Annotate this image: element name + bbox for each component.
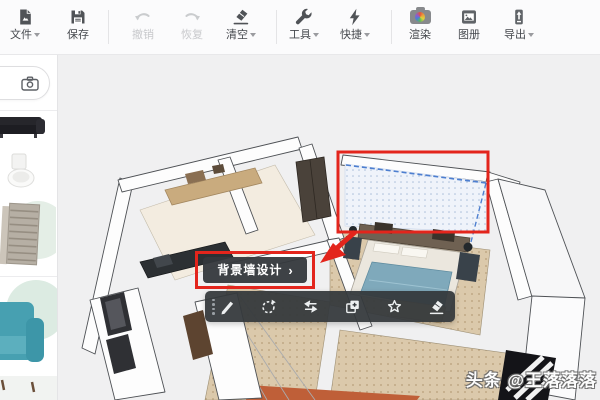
favorite-star-icon[interactable]	[386, 298, 403, 315]
annotation-outline-box: 背景墙设计 ›	[195, 251, 315, 289]
clear-button[interactable]: 清空	[219, 4, 263, 52]
album-button[interactable]: 图册	[447, 4, 491, 52]
rainbow-lens-icon	[415, 12, 425, 22]
background-wall-design-button[interactable]: 背景墙设计 ›	[203, 257, 307, 283]
camera-icon	[21, 76, 39, 91]
tools-button[interactable]: 工具	[282, 4, 326, 52]
dark-sofa-thumbnail	[0, 112, 50, 146]
sidebar-divider	[0, 276, 57, 277]
redo-icon	[182, 7, 202, 27]
dropdown-caret-icon	[364, 33, 370, 37]
undo-label: 撤销	[132, 29, 154, 41]
rotate-icon[interactable]	[260, 298, 277, 315]
catalog-item-teal-sofa[interactable]	[0, 280, 57, 400]
app-window: 文件 保存 撤销 恢复	[0, 0, 600, 400]
export-label: 导出	[504, 29, 526, 41]
sidebar-divider	[0, 110, 57, 111]
clear-label: 清空	[226, 29, 248, 41]
lamp-right	[464, 243, 473, 252]
export-icon	[509, 7, 529, 27]
render-button[interactable]: 渲染	[398, 4, 442, 52]
drag-handle-icon[interactable]	[212, 299, 215, 315]
background-wall-design-label: 背景墙设计	[217, 264, 282, 276]
tools-label: 工具	[289, 29, 311, 41]
redo-button[interactable]: 恢复	[170, 4, 214, 52]
dropdown-caret-icon	[250, 33, 256, 37]
object-context-toolbar	[205, 291, 455, 322]
undo-button[interactable]: 撤销	[121, 4, 165, 52]
cabinet-thumbnail	[0, 198, 56, 274]
save-icon	[68, 7, 88, 27]
toilet-thumbnail	[0, 146, 50, 198]
file-icon	[15, 7, 35, 27]
teal-sofa-thumbnail	[0, 280, 57, 400]
file-label: 文件	[10, 29, 32, 41]
copy-add-icon[interactable]	[344, 298, 361, 315]
toolbar-separator	[108, 10, 109, 44]
nightstand-right	[456, 252, 480, 282]
toolbar-separator	[391, 10, 392, 44]
file-button[interactable]: 文件	[3, 4, 47, 52]
edit-pencil-icon[interactable]	[219, 298, 236, 315]
render-camera-icon	[410, 10, 431, 24]
save-button[interactable]: 保存	[56, 4, 100, 52]
top-toolbar: 文件 保存 撤销 恢复	[0, 0, 600, 55]
lightning-icon	[345, 7, 365, 27]
dropdown-caret-icon	[313, 33, 319, 37]
erase-delete-icon[interactable]	[428, 298, 445, 315]
mirror-flip-icon[interactable]	[302, 298, 319, 315]
watermark: 头条 @王落落落	[466, 366, 597, 391]
quick-button[interactable]: 快捷	[333, 4, 377, 52]
render-label: 渲染	[409, 29, 431, 41]
undo-icon	[133, 7, 153, 27]
toolbar-separator	[276, 10, 277, 44]
catalog-item-cabinet[interactable]	[0, 198, 56, 279]
dropdown-caret-icon	[34, 33, 40, 37]
chevron-right-icon: ›	[288, 264, 292, 277]
album-icon	[459, 7, 479, 27]
album-label: 图册	[458, 29, 480, 41]
redo-label: 恢复	[181, 29, 203, 41]
quick-label: 快捷	[340, 29, 362, 41]
catalog-sidebar	[0, 54, 58, 400]
save-label: 保存	[67, 29, 89, 41]
catalog-item-toilet[interactable]	[0, 146, 50, 203]
export-button[interactable]: 导出	[497, 4, 541, 52]
floorplan-scene	[57, 54, 600, 400]
viewport-3d[interactable]	[57, 54, 600, 400]
wrench-icon	[294, 7, 314, 27]
image-search-button[interactable]	[0, 66, 50, 100]
dropdown-caret-icon	[528, 33, 534, 37]
clear-eraser-icon	[231, 7, 251, 27]
